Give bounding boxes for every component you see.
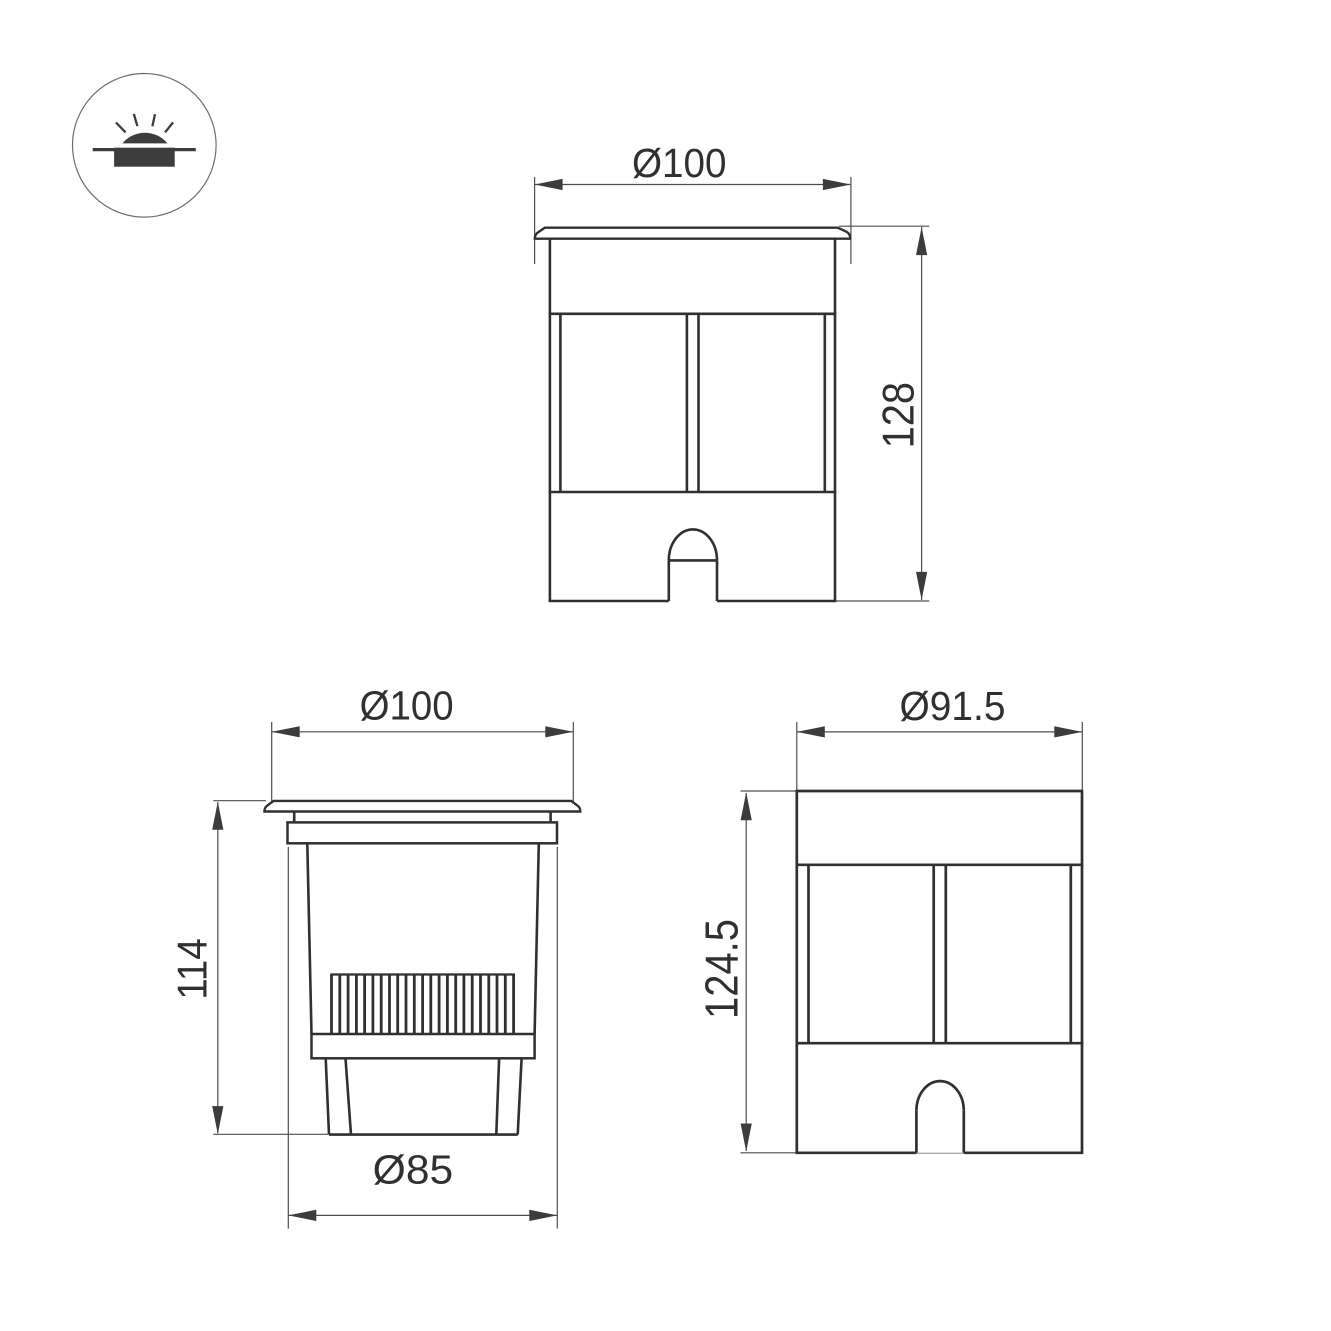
svg-text:128: 128: [874, 382, 923, 449]
svg-text:114: 114: [169, 938, 216, 1000]
svg-text:124.5: 124.5: [695, 919, 747, 1019]
svg-text:Ø91.5: Ø91.5: [900, 683, 1006, 729]
svg-text:Ø100: Ø100: [360, 683, 454, 729]
svg-text:Ø100: Ø100: [632, 140, 727, 186]
svg-text:Ø85: Ø85: [373, 1147, 454, 1193]
